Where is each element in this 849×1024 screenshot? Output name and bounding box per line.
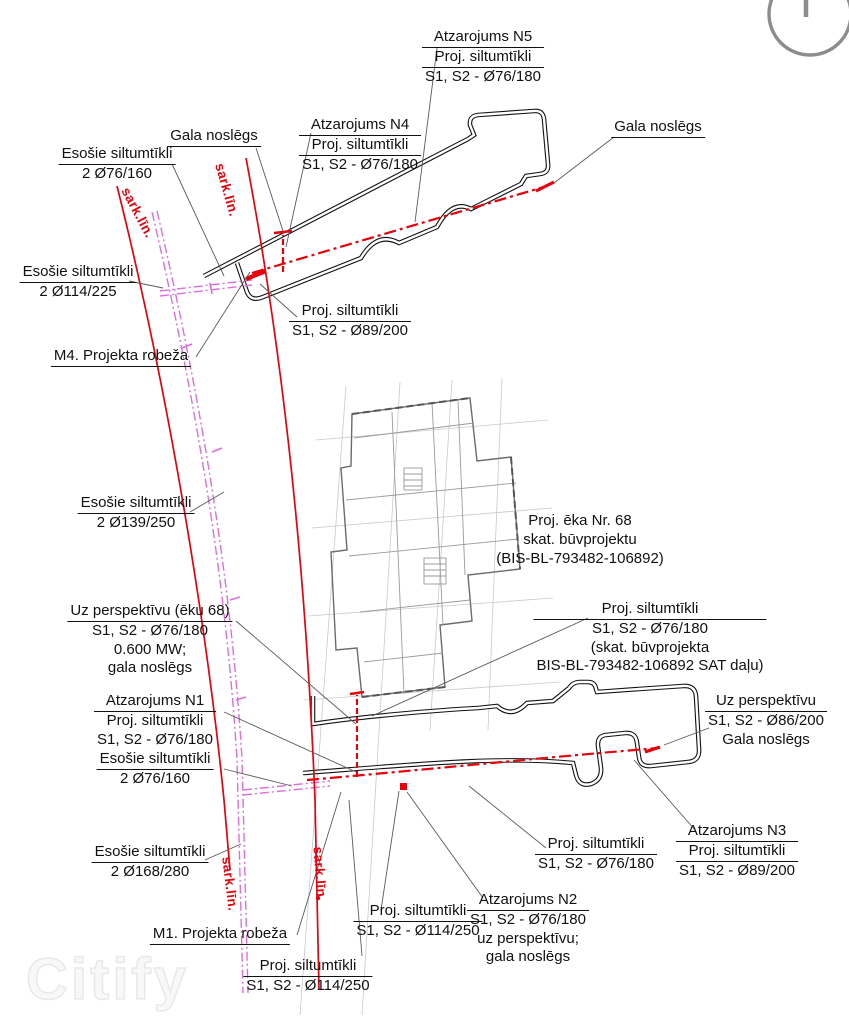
building-footprint (331, 398, 520, 697)
label-atzarojums-n5-line-1: Proj. siltumtīkli (422, 48, 544, 68)
label-uz-perspektivu-right: Uz perspektīvuS1, S2 - Ø86/200Gala noslē… (705, 692, 827, 749)
label-m1-projekta-robeza-line-0: M1. Projekta robeža (150, 925, 290, 945)
label-atzarojums-n1: Atzarojums N1Proj. siltumtīkliS1, S2 - Ø… (94, 692, 216, 749)
label-proj-sat-dalu-line-0: Proj. siltumtīkli (533, 600, 766, 620)
site-plan: Citify Atzarojums N5Proj. siltumtīkliS1,… (0, 0, 849, 1024)
label-atzarojums-n2: Atzarojums N2S1, S2 - Ø76/180uz perspekt… (467, 891, 589, 967)
label-proj-sat-dalu: Proj. siltumtīkliS1, S2 - Ø76/180(skat. … (533, 600, 766, 676)
label-atzarojums-n2-line-1: S1, S2 - Ø76/180 (467, 911, 589, 930)
label-proj-114-250-bottom-line-1: S1, S2 - Ø114/250 (243, 977, 372, 996)
label-gala-noslegs-top-left-line-0: Gala noslēgs (167, 127, 261, 147)
label-uz-perspektivu-eku-68-line-0: Uz perspektīvu (ēku 68) (67, 602, 232, 622)
label-uz-perspektivu-eku-68: Uz perspektīvu (ēku 68)S1, S2 - Ø76/1800… (67, 602, 232, 678)
label-proj-76-180-bottom: Proj. siltumtīkliS1, S2 - Ø76/180 (535, 835, 657, 874)
label-esosie-139-250-line-0: Esošie siltumtīkli (78, 494, 195, 514)
label-uz-perspektivu-right-line-0: Uz perspektīvu (705, 692, 827, 712)
label-uz-perspektivu-eku-68-line-2: 0.600 MW; (67, 641, 232, 660)
label-esosie-114-225-line-1: 2 Ø114/225 (20, 283, 137, 302)
label-esosie-76-160-top-line-1: 2 Ø76/160 (59, 165, 176, 184)
label-atzarojums-n4-line-2: S1, S2 - Ø76/180 (299, 156, 421, 175)
label-esosie-168-280-line-1: 2 Ø168/280 (92, 863, 209, 882)
label-atzarojums-n1-line-1: Proj. siltumtīkli (94, 712, 216, 731)
watermark-logo: Citify (26, 946, 189, 1013)
label-atzarojums-n5: Atzarojums N5Proj. siltumtīkliS1, S2 - Ø… (422, 28, 544, 86)
label-atzarojums-n4-line-0: Atzarojums N4 (299, 116, 421, 136)
label-esosie-114-225: Esošie siltumtīkli2 Ø114/225 (20, 263, 137, 302)
label-atzarojums-n3-line-0: Atzarojums N3 (676, 822, 798, 842)
label-esosie-76-160-top: Esošie siltumtīkli2 Ø76/160 (59, 145, 176, 184)
label-gala-noslegs-top-left: Gala noslēgs (167, 127, 261, 147)
label-esosie-168-280-line-0: Esošie siltumtīkli (92, 843, 209, 863)
label-esosie-139-250-line-1: 2 Ø139/250 (78, 514, 195, 533)
label-proj-89-200-top: Proj. siltumtīkliS1, S2 - Ø89/200 (289, 302, 411, 341)
label-m4-projekta-robeza-line-0: M4. Projekta robeža (51, 347, 191, 367)
label-atzarojums-n3: Atzarojums N3Proj. siltumtīkliS1, S2 - Ø… (676, 822, 798, 880)
label-atzarojums-n1-line-0: Atzarojums N1 (94, 692, 216, 712)
label-uz-perspektivu-right-line-2: Gala noslēgs (705, 731, 827, 750)
label-proj-114-250-mid-line-0: Proj. siltumtīkli (353, 902, 482, 922)
label-atzarojums-n2-line-2: uz perspektīvu; (467, 930, 589, 949)
label-atzarojums-n5-line-0: Atzarojums N5 (422, 28, 544, 48)
label-uz-perspektivu-eku-68-line-3: gala noslēgs (67, 659, 232, 678)
label-proj-eka-68: Proj. ēka Nr. 68skat. būvprojektu(BIS-BL… (493, 512, 667, 568)
north-arrow-icon (769, 0, 849, 55)
label-proj-sat-dalu-line-1: S1, S2 - Ø76/180 (533, 620, 766, 639)
red-line-sark-right (246, 158, 319, 990)
label-esosie-139-250: Esošie siltumtīkli2 Ø139/250 (78, 494, 195, 533)
label-uz-perspektivu-right-line-1: S1, S2 - Ø86/200 (705, 712, 827, 731)
label-atzarojums-n1-line-2: S1, S2 - Ø76/180 (94, 731, 216, 750)
label-esosie-76-160-bottom: Esošie siltumtīkli2 Ø76/160 (97, 750, 214, 789)
label-proj-114-250-mid: Proj. siltumtīkliS1, S2 - Ø114/250 (353, 902, 482, 941)
label-proj-76-180-bottom-line-0: Proj. siltumtīkli (535, 835, 657, 855)
building-interior-walls (346, 400, 518, 694)
label-gala-noslegs-top-right: Gala noslēgs (611, 118, 705, 138)
label-esosie-168-280: Esošie siltumtīkli2 Ø168/280 (92, 843, 209, 882)
label-m1-projekta-robeza: M1. Projekta robeža (150, 925, 290, 945)
label-atzarojums-n5-line-2: S1, S2 - Ø76/180 (422, 68, 544, 87)
label-esosie-76-160-bottom-line-1: 2 Ø76/160 (97, 770, 214, 789)
label-proj-114-250-mid-line-1: S1, S2 - Ø114/250 (353, 922, 482, 941)
label-esosie-76-160-bottom-line-0: Esošie siltumtīkli (97, 750, 214, 770)
label-atzarojums-n4: Atzarojums N4Proj. siltumtīkliS1, S2 - Ø… (299, 116, 421, 174)
label-proj-114-250-bottom-line-0: Proj. siltumtīkli (243, 957, 372, 977)
label-proj-sat-dalu-line-3: BIS-BL-793482-106892 SAT daļu) (533, 657, 766, 676)
label-atzarojums-n2-line-0: Atzarojums N2 (467, 891, 589, 911)
label-proj-eka-68-line-1: skat. būvprojektu (493, 531, 667, 550)
label-proj-76-180-bottom-line-1: S1, S2 - Ø76/180 (535, 855, 657, 874)
label-proj-eka-68-line-2: (BIS-BL-793482-106892) (493, 550, 667, 569)
label-proj-89-200-top-line-1: S1, S2 - Ø89/200 (289, 322, 411, 341)
label-atzarojums-n3-line-1: Proj. siltumtīkli (676, 842, 798, 862)
label-esosie-114-225-line-0: Esošie siltumtīkli (20, 263, 137, 283)
label-uz-perspektivu-eku-68-line-1: S1, S2 - Ø76/180 (67, 622, 232, 641)
label-m4-projekta-robeza: M4. Projekta robeža (51, 347, 191, 367)
label-atzarojums-n4-line-1: Proj. siltumtīkli (299, 136, 421, 156)
label-proj-114-250-bottom: Proj. siltumtīkliS1, S2 - Ø114/250 (243, 957, 372, 996)
label-atzarojums-n3-line-2: S1, S2 - Ø89/200 (676, 862, 798, 881)
label-proj-89-200-top-line-0: Proj. siltumtīkli (289, 302, 411, 322)
label-esosie-76-160-top-line-0: Esošie siltumtīkli (59, 145, 176, 165)
label-gala-noslegs-top-right-line-0: Gala noslēgs (611, 118, 705, 138)
label-atzarojums-n2-line-3: gala noslēgs (467, 948, 589, 967)
label-proj-sat-dalu-line-2: (skat. būvprojekta (533, 639, 766, 658)
label-proj-eka-68-line-0: Proj. ēka Nr. 68 (493, 512, 667, 531)
